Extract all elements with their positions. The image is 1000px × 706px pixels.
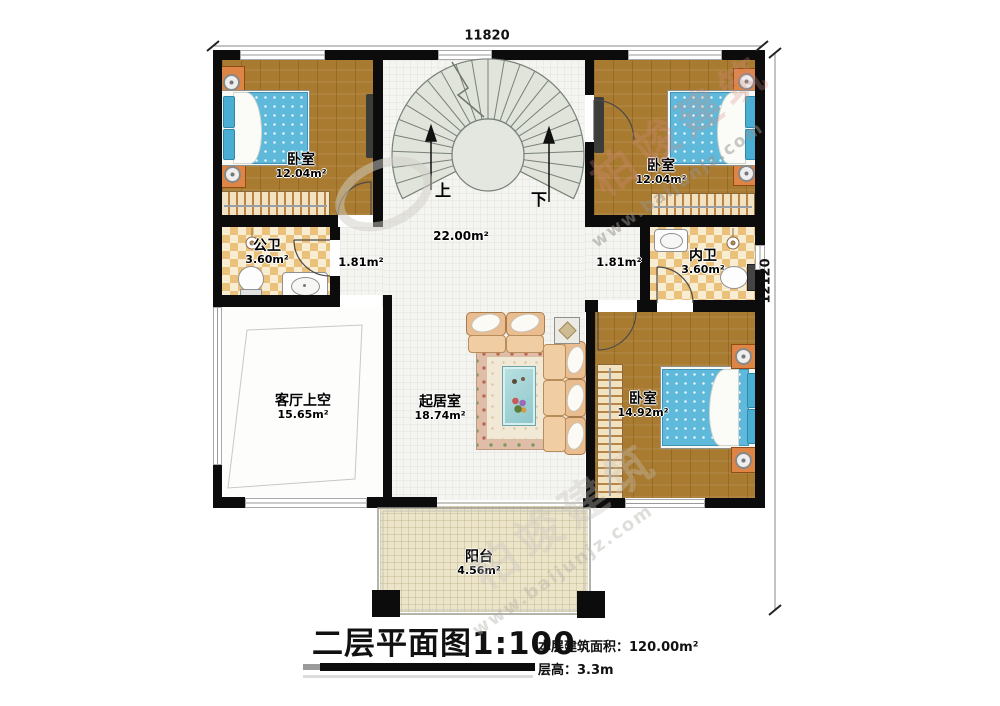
column (372, 590, 400, 617)
title-rule-shadow (303, 675, 533, 678)
door-arc (594, 100, 634, 140)
stairs-up-label: 上 (435, 177, 451, 201)
floor-area-note: 本层建筑面积：120.00m² (538, 636, 698, 655)
door-arc (598, 312, 636, 350)
hall-area-label: 22.00m² (433, 229, 489, 243)
title-rule (320, 663, 535, 671)
page-title: 二层平面图1:100 (312, 618, 576, 663)
room-label-public-bathroom: 公卫 3.60m² (245, 239, 288, 265)
corridor-right-area-label: 1.81m² (596, 255, 641, 269)
room-label-private-bathroom: 内卫 3.60m² (681, 249, 724, 275)
stair-center (452, 119, 524, 191)
room-label-bedroom-top-left: 卧室 12.04m² (275, 153, 326, 179)
floor-height-note: 层高：3.3m (538, 659, 614, 678)
room-label-living-void: 客厅上空 15.65m² (275, 394, 331, 420)
room-label-living-room: 起居室 18.74m² (414, 395, 465, 421)
room-label-bedroom-top-right: 卧室 12.04m² (635, 159, 686, 185)
shower-heads (246, 228, 739, 249)
room-label-bedroom-bottom-right: 卧室 14.92m² (617, 392, 668, 418)
door-arc (294, 240, 330, 276)
title-rule-start (303, 664, 320, 670)
dimension-label-right: 12120 (759, 258, 774, 303)
spiral-staircase (392, 59, 584, 199)
door-arc (338, 182, 371, 215)
dimension-label-top: 11820 (464, 29, 509, 44)
stairs-down-label: 下 (531, 186, 547, 210)
room-label-balcony: 阳台 4.56m² (457, 550, 500, 576)
floor-plan: 11820 12120 卧室 12.04m² 卧室 12.04m² 卧室 14.… (0, 0, 1000, 706)
column (577, 591, 605, 618)
corridor-left-area-label: 1.81m² (338, 255, 383, 269)
plan-linework (0, 0, 1000, 706)
